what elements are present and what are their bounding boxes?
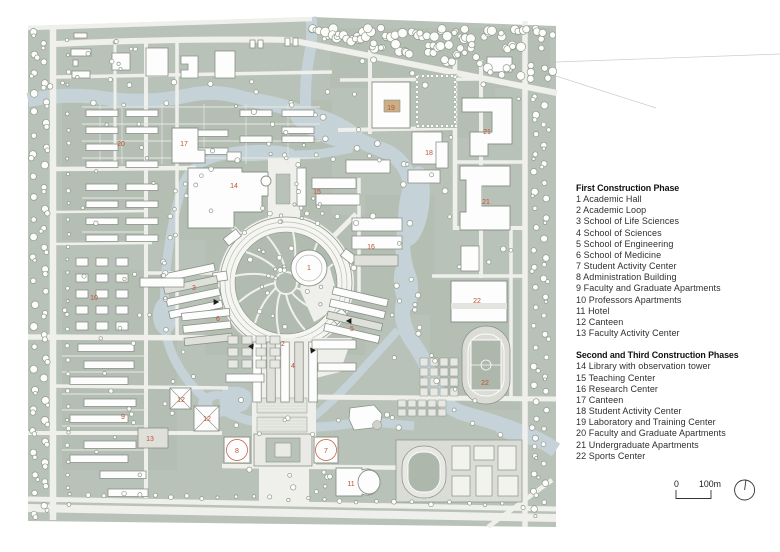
svg-text:3: 3	[192, 285, 196, 292]
svg-text:5: 5	[350, 326, 354, 333]
svg-text:20: 20	[117, 141, 125, 148]
svg-text:10: 10	[90, 295, 98, 302]
svg-text:18: 18	[425, 150, 433, 157]
svg-text:9: 9	[121, 414, 125, 421]
svg-text:100m: 100m	[699, 479, 721, 489]
svg-text:4: 4	[291, 363, 295, 370]
svg-text:13: 13	[146, 436, 154, 443]
svg-text:17: 17	[180, 141, 188, 148]
svg-text:1: 1	[307, 265, 311, 272]
svg-text:12: 12	[203, 416, 211, 423]
svg-text:7: 7	[324, 448, 328, 455]
svg-text:8: 8	[235, 448, 239, 455]
svg-text:2: 2	[281, 341, 285, 348]
svg-text:14: 14	[230, 183, 238, 190]
svg-text:16: 16	[367, 244, 375, 251]
svg-text:22: 22	[481, 380, 489, 387]
svg-text:11: 11	[347, 481, 354, 488]
svg-text:21: 21	[483, 129, 491, 136]
svg-text:12: 12	[177, 397, 185, 404]
svg-text:15: 15	[313, 189, 321, 196]
svg-text:21: 21	[482, 199, 490, 206]
svg-text:6: 6	[216, 316, 220, 323]
svg-text:19: 19	[387, 105, 395, 112]
svg-text:0: 0	[674, 479, 679, 489]
svg-text:22: 22	[473, 298, 481, 305]
